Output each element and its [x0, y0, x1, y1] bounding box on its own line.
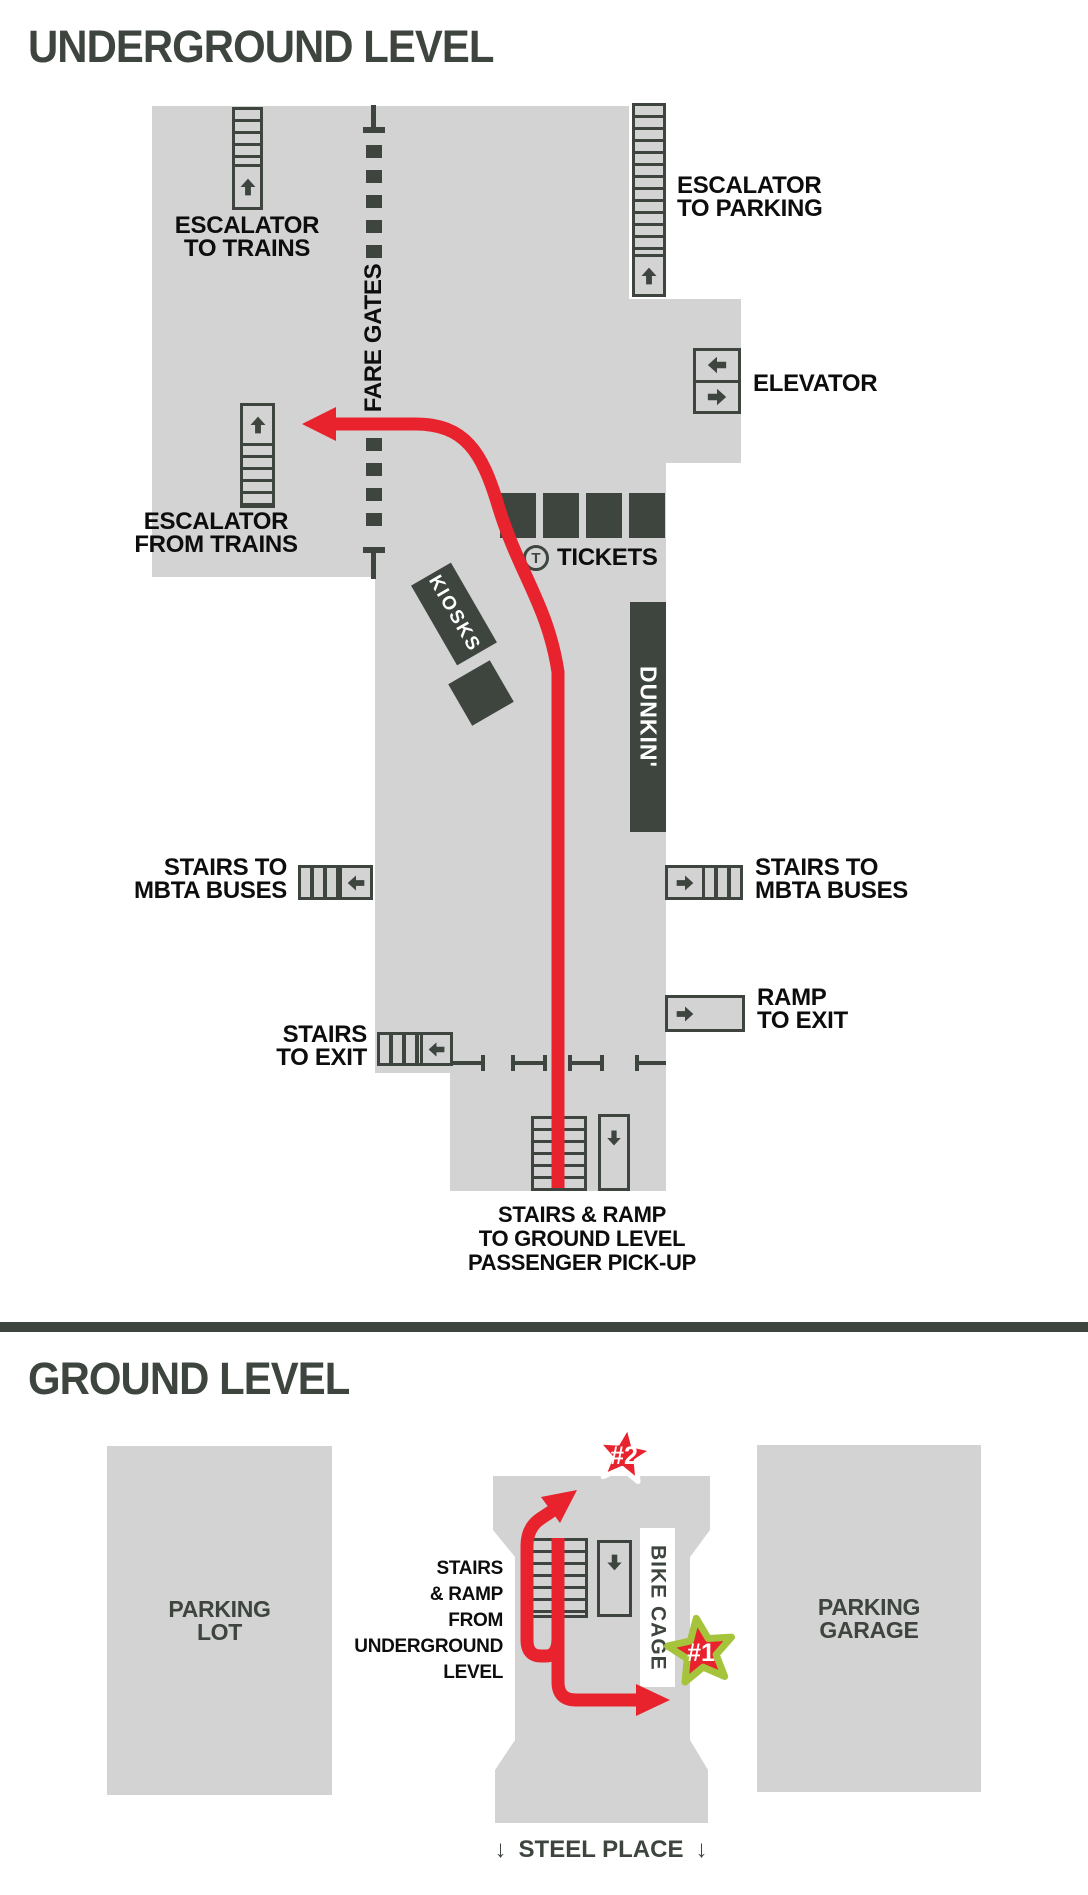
star-1-label: #1	[687, 1639, 715, 1667]
route-arrowhead-right	[636, 1684, 670, 1716]
route-arrowhead-left	[302, 407, 336, 441]
star-1: #1	[664, 1614, 737, 1684]
star-2: #2	[592, 1421, 656, 1483]
route-overlay: #2 #1	[0, 0, 1088, 1895]
route-underground-path	[334, 424, 558, 1188]
route-ground-to-star1-path	[558, 1538, 638, 1700]
star-2-label: #2	[610, 1442, 638, 1470]
station-map: UNDERGROUND LEVEL GROUND LEVEL FARE GATE…	[0, 0, 1088, 1895]
